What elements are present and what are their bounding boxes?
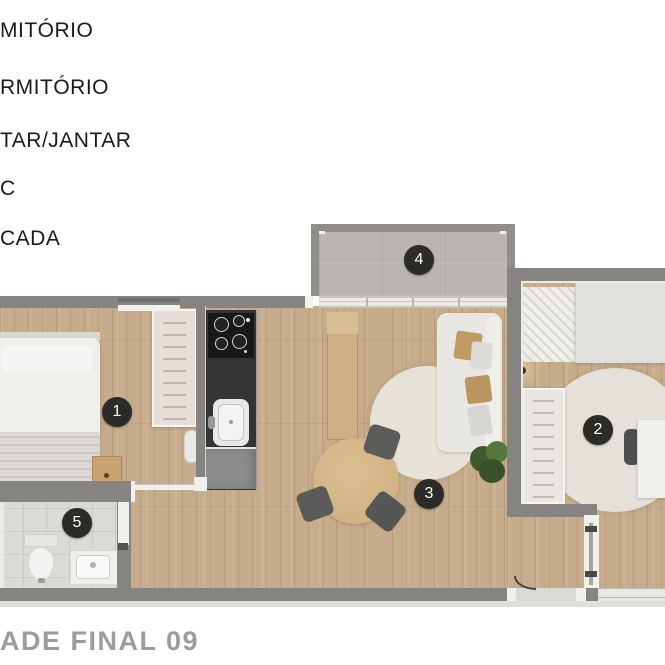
- wardrobe2-hangers: [533, 394, 555, 497]
- sofa-pillow-gray: [467, 404, 493, 436]
- cooktop-burner: [215, 337, 228, 350]
- legend-item-wc: C: [0, 177, 16, 201]
- bedroom1-window-sill: [118, 305, 180, 311]
- bedroom1-window: [118, 298, 180, 302]
- balcony-top-wall: [311, 224, 515, 232]
- sliding-door-divider: [458, 298, 460, 306]
- wall-trim: [521, 281, 665, 283]
- wardrobe1-hangers: [163, 316, 186, 421]
- unit-title: ADE FINAL 09: [0, 626, 199, 657]
- door-jamb: [507, 588, 516, 601]
- door-hinge: [585, 526, 597, 532]
- wall-trim: [521, 283, 523, 504]
- door-jamb: [194, 477, 207, 491]
- plant-leaf: [479, 459, 505, 483]
- bedroom1-door-threshold: [135, 484, 195, 490]
- wardrobe1: [152, 309, 197, 427]
- cooktop-burner: [233, 315, 245, 327]
- balcony-corner-mark: [500, 231, 506, 234]
- bottom-window: [598, 588, 665, 601]
- sofa-cushion-tan: [464, 375, 492, 405]
- door-hinge: [118, 543, 128, 550]
- bed1-pillow: [2, 346, 92, 372]
- sofa-pillow-gray: [470, 341, 493, 369]
- door-hinge: [585, 571, 597, 577]
- bed1-blanket: [0, 432, 100, 486]
- bedroom2-left-wall: [507, 268, 521, 517]
- sliding-door-divider: [412, 298, 414, 306]
- balcony-left-wall: [311, 224, 319, 296]
- wardrobe2: [522, 388, 565, 504]
- refrigerator: [206, 447, 256, 489]
- toilet-flush: [38, 578, 45, 583]
- legend-item-dormitorio-1: MITÓRIO: [0, 19, 93, 43]
- legend-item-sacada: CADA: [0, 227, 60, 251]
- sliding-door-divider: [366, 298, 368, 306]
- bedroom1-kitchen-wall: [196, 306, 206, 482]
- balcony-corner-mark: [319, 231, 325, 234]
- cooktop-knob: [246, 318, 250, 322]
- wc-door-leaf: [118, 502, 129, 545]
- door-jamb: [305, 296, 313, 308]
- sink-drain: [229, 420, 233, 424]
- room-marker-2: 2: [583, 415, 613, 445]
- room-marker-5: 5: [62, 508, 92, 538]
- door-jamb: [576, 588, 586, 601]
- room-marker-1: 1: [102, 397, 132, 427]
- room-marker-4: 4: [404, 245, 434, 275]
- wc-faucet: [90, 562, 96, 568]
- kitchen-faucet: [208, 416, 215, 429]
- bed2-pillow: [522, 287, 575, 362]
- cooktop-burner: [214, 317, 229, 332]
- bed2: [575, 283, 665, 363]
- cooktop-burner: [232, 334, 247, 349]
- entry-door-opening: [514, 588, 578, 601]
- legend-item-estar-jantar: TAR/JANTAR: [0, 129, 131, 153]
- desk: [637, 420, 665, 498]
- bedroom1-wc-wall: [0, 481, 126, 502]
- bar-counter-cabinet: [327, 312, 358, 334]
- floor-plan-page: MITÓRIO RMITÓRIO TAR/JANTAR C CADA: [0, 0, 665, 665]
- cooktop-knob: [244, 350, 247, 353]
- nightstand-lamp: [104, 473, 109, 478]
- wall-shadow-strip: [0, 601, 665, 607]
- legend-item-dormitorio-2: RMITÓRIO: [0, 76, 109, 100]
- bedroom2-top-wall: [507, 268, 665, 281]
- room-marker-3: 3: [414, 479, 444, 509]
- toilet-tank: [24, 534, 58, 547]
